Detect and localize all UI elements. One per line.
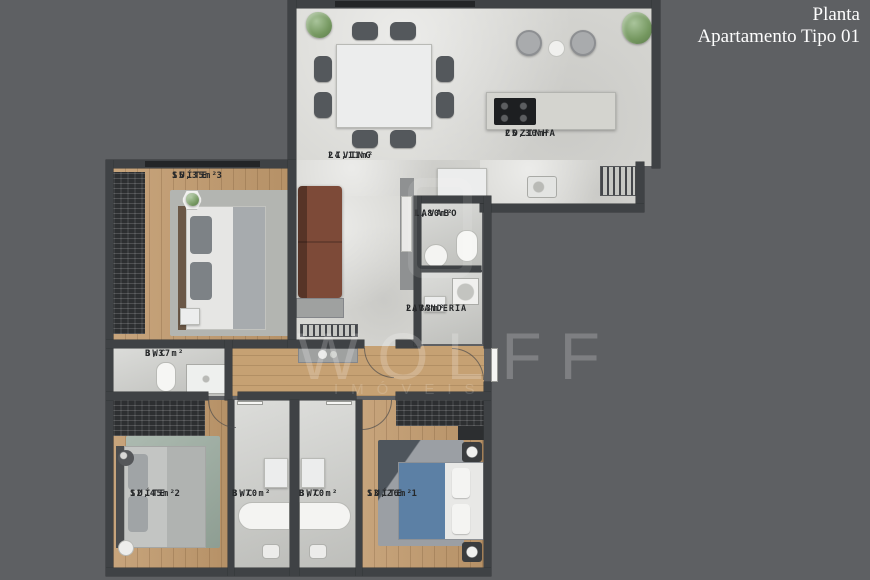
dining-chair bbox=[314, 56, 332, 82]
bed-suite1 bbox=[398, 462, 484, 540]
pillow-suite1 bbox=[452, 504, 470, 534]
plant-living bbox=[306, 12, 332, 38]
nightstand-suite1 bbox=[462, 442, 482, 462]
wall bbox=[288, 160, 296, 348]
dining-chair bbox=[352, 130, 378, 148]
bathtub-bwc-suite1 bbox=[299, 502, 351, 530]
wardrobe-suite1 bbox=[396, 400, 484, 426]
dresser-suite1 bbox=[458, 426, 484, 440]
sink-bwc-suite1 bbox=[301, 458, 325, 488]
dining-chair bbox=[390, 130, 416, 148]
title-line2: Apartamento Tipo 01 bbox=[697, 26, 860, 48]
cooktop bbox=[494, 98, 536, 125]
dining-chair bbox=[436, 56, 454, 82]
wall bbox=[480, 204, 644, 212]
wall bbox=[636, 162, 644, 210]
dining-chair bbox=[314, 92, 332, 118]
pillow-suite3 bbox=[190, 262, 212, 300]
stool-suite2 bbox=[118, 540, 134, 556]
wall bbox=[106, 340, 296, 348]
door-leaf-bwc-suite1 bbox=[326, 401, 352, 405]
toilet-bwc-suite1 bbox=[309, 544, 327, 559]
stool-suite2 bbox=[118, 450, 134, 466]
kitchen-sink-round bbox=[548, 40, 565, 57]
sideboard-living bbox=[296, 298, 344, 318]
plant-kitchen bbox=[622, 12, 652, 44]
bar-stool bbox=[570, 30, 596, 56]
toilet-bwc-suite2 bbox=[262, 544, 280, 559]
bar-stool bbox=[516, 30, 542, 56]
page-title: Planta Apartamento Tipo 01 bbox=[697, 4, 860, 48]
pillow-suite2 bbox=[128, 496, 148, 532]
wall bbox=[288, 0, 296, 166]
microwave bbox=[527, 176, 557, 198]
watermark-logo bbox=[408, 178, 472, 278]
nightstand-suite1 bbox=[462, 542, 482, 562]
sliding-door-balcony bbox=[335, 1, 475, 7]
pillow-suite3 bbox=[190, 216, 212, 254]
sofa bbox=[298, 186, 342, 298]
dining-table bbox=[336, 44, 432, 128]
dining-chair bbox=[436, 92, 454, 118]
nightstand-suite3 bbox=[180, 308, 200, 325]
watermark-subtitle: IMÓVEIS bbox=[334, 381, 488, 398]
wall bbox=[652, 0, 660, 168]
pillow-suite1 bbox=[452, 468, 470, 498]
bathtub-bwc-suite2 bbox=[238, 502, 290, 530]
washing-machine bbox=[452, 278, 479, 305]
wall bbox=[106, 160, 113, 576]
sink-bwc-suite2 bbox=[264, 458, 288, 488]
plant-suite3 bbox=[186, 193, 199, 206]
title-line1: Planta bbox=[697, 4, 860, 26]
wall bbox=[290, 400, 299, 576]
floor-plan-canvas: SUÍTE 3 15,35m² LIVING 24,11m² COZINHA 2… bbox=[0, 0, 870, 580]
toilet-bwc-social bbox=[156, 362, 176, 392]
wall bbox=[225, 340, 232, 400]
service-shaft bbox=[600, 166, 636, 196]
sliding-door-suite3 bbox=[145, 161, 260, 167]
dining-chair bbox=[390, 22, 416, 40]
wall bbox=[484, 382, 491, 576]
door-leaf-bwc-suite2 bbox=[237, 401, 263, 405]
shower-bwc-social bbox=[186, 364, 226, 394]
dining-chair bbox=[352, 22, 378, 40]
wardrobe-suite2 bbox=[113, 400, 205, 436]
wall bbox=[106, 392, 208, 400]
wardrobe-suite3 bbox=[113, 172, 145, 334]
